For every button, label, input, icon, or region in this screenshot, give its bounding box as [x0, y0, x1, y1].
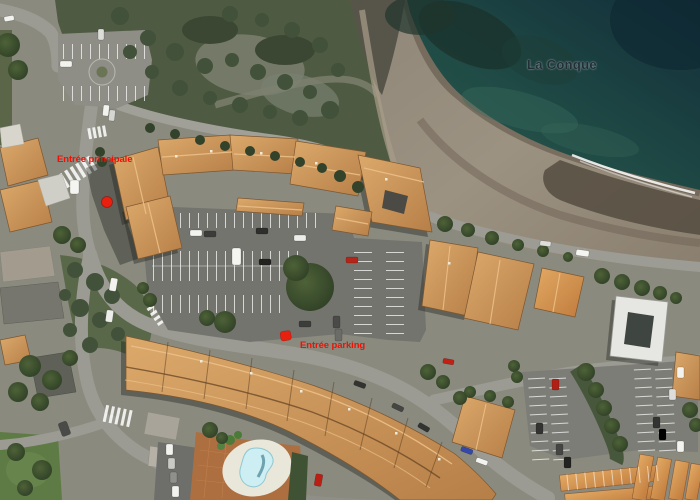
north-parking-lot	[58, 30, 152, 108]
red-car	[346, 257, 358, 263]
satellite-map: La Conque Entrée principale Entrée parki…	[0, 0, 700, 500]
satellite-imagery	[0, 0, 700, 500]
parking-entrance-marker	[280, 330, 292, 341]
main-entrance-marker	[102, 197, 113, 208]
